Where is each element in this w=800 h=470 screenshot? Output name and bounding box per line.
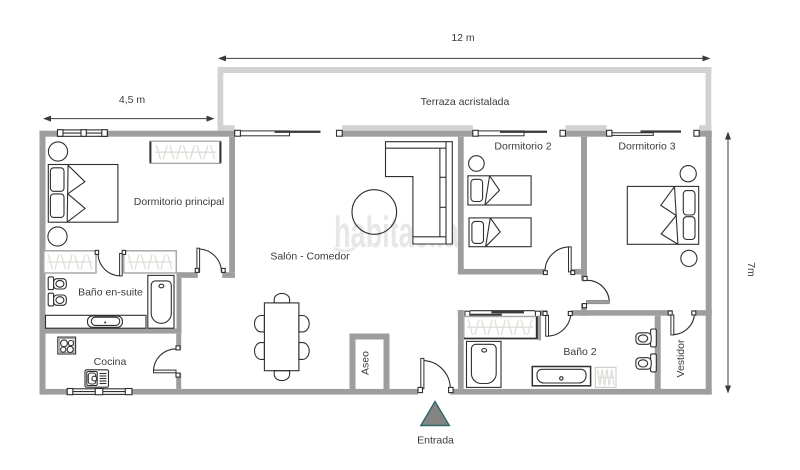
svg-text:7m: 7m [745, 262, 757, 277]
svg-text:Entrada: Entrada [417, 435, 454, 447]
svg-text:Baño en-suite: Baño en-suite [78, 287, 143, 299]
svg-text:Dormitorio 3: Dormitorio 3 [618, 141, 675, 153]
svg-text:4,5 m: 4,5 m [119, 94, 146, 106]
svg-text:Dormitorio principal: Dormitorio principal [134, 196, 224, 208]
svg-text:Cocina: Cocina [94, 356, 127, 368]
svg-text:Aseo: Aseo [360, 351, 372, 375]
svg-text:Vestidor: Vestidor [675, 339, 687, 377]
svg-text:Dormitorio 2: Dormitorio 2 [494, 141, 551, 153]
svg-text:Baño 2: Baño 2 [563, 346, 596, 358]
svg-text:Terraza acristalada: Terraza acristalada [421, 96, 510, 108]
svg-text:Salón - Comedor: Salón - Comedor [270, 251, 350, 263]
svg-text:12 m: 12 m [451, 32, 475, 44]
